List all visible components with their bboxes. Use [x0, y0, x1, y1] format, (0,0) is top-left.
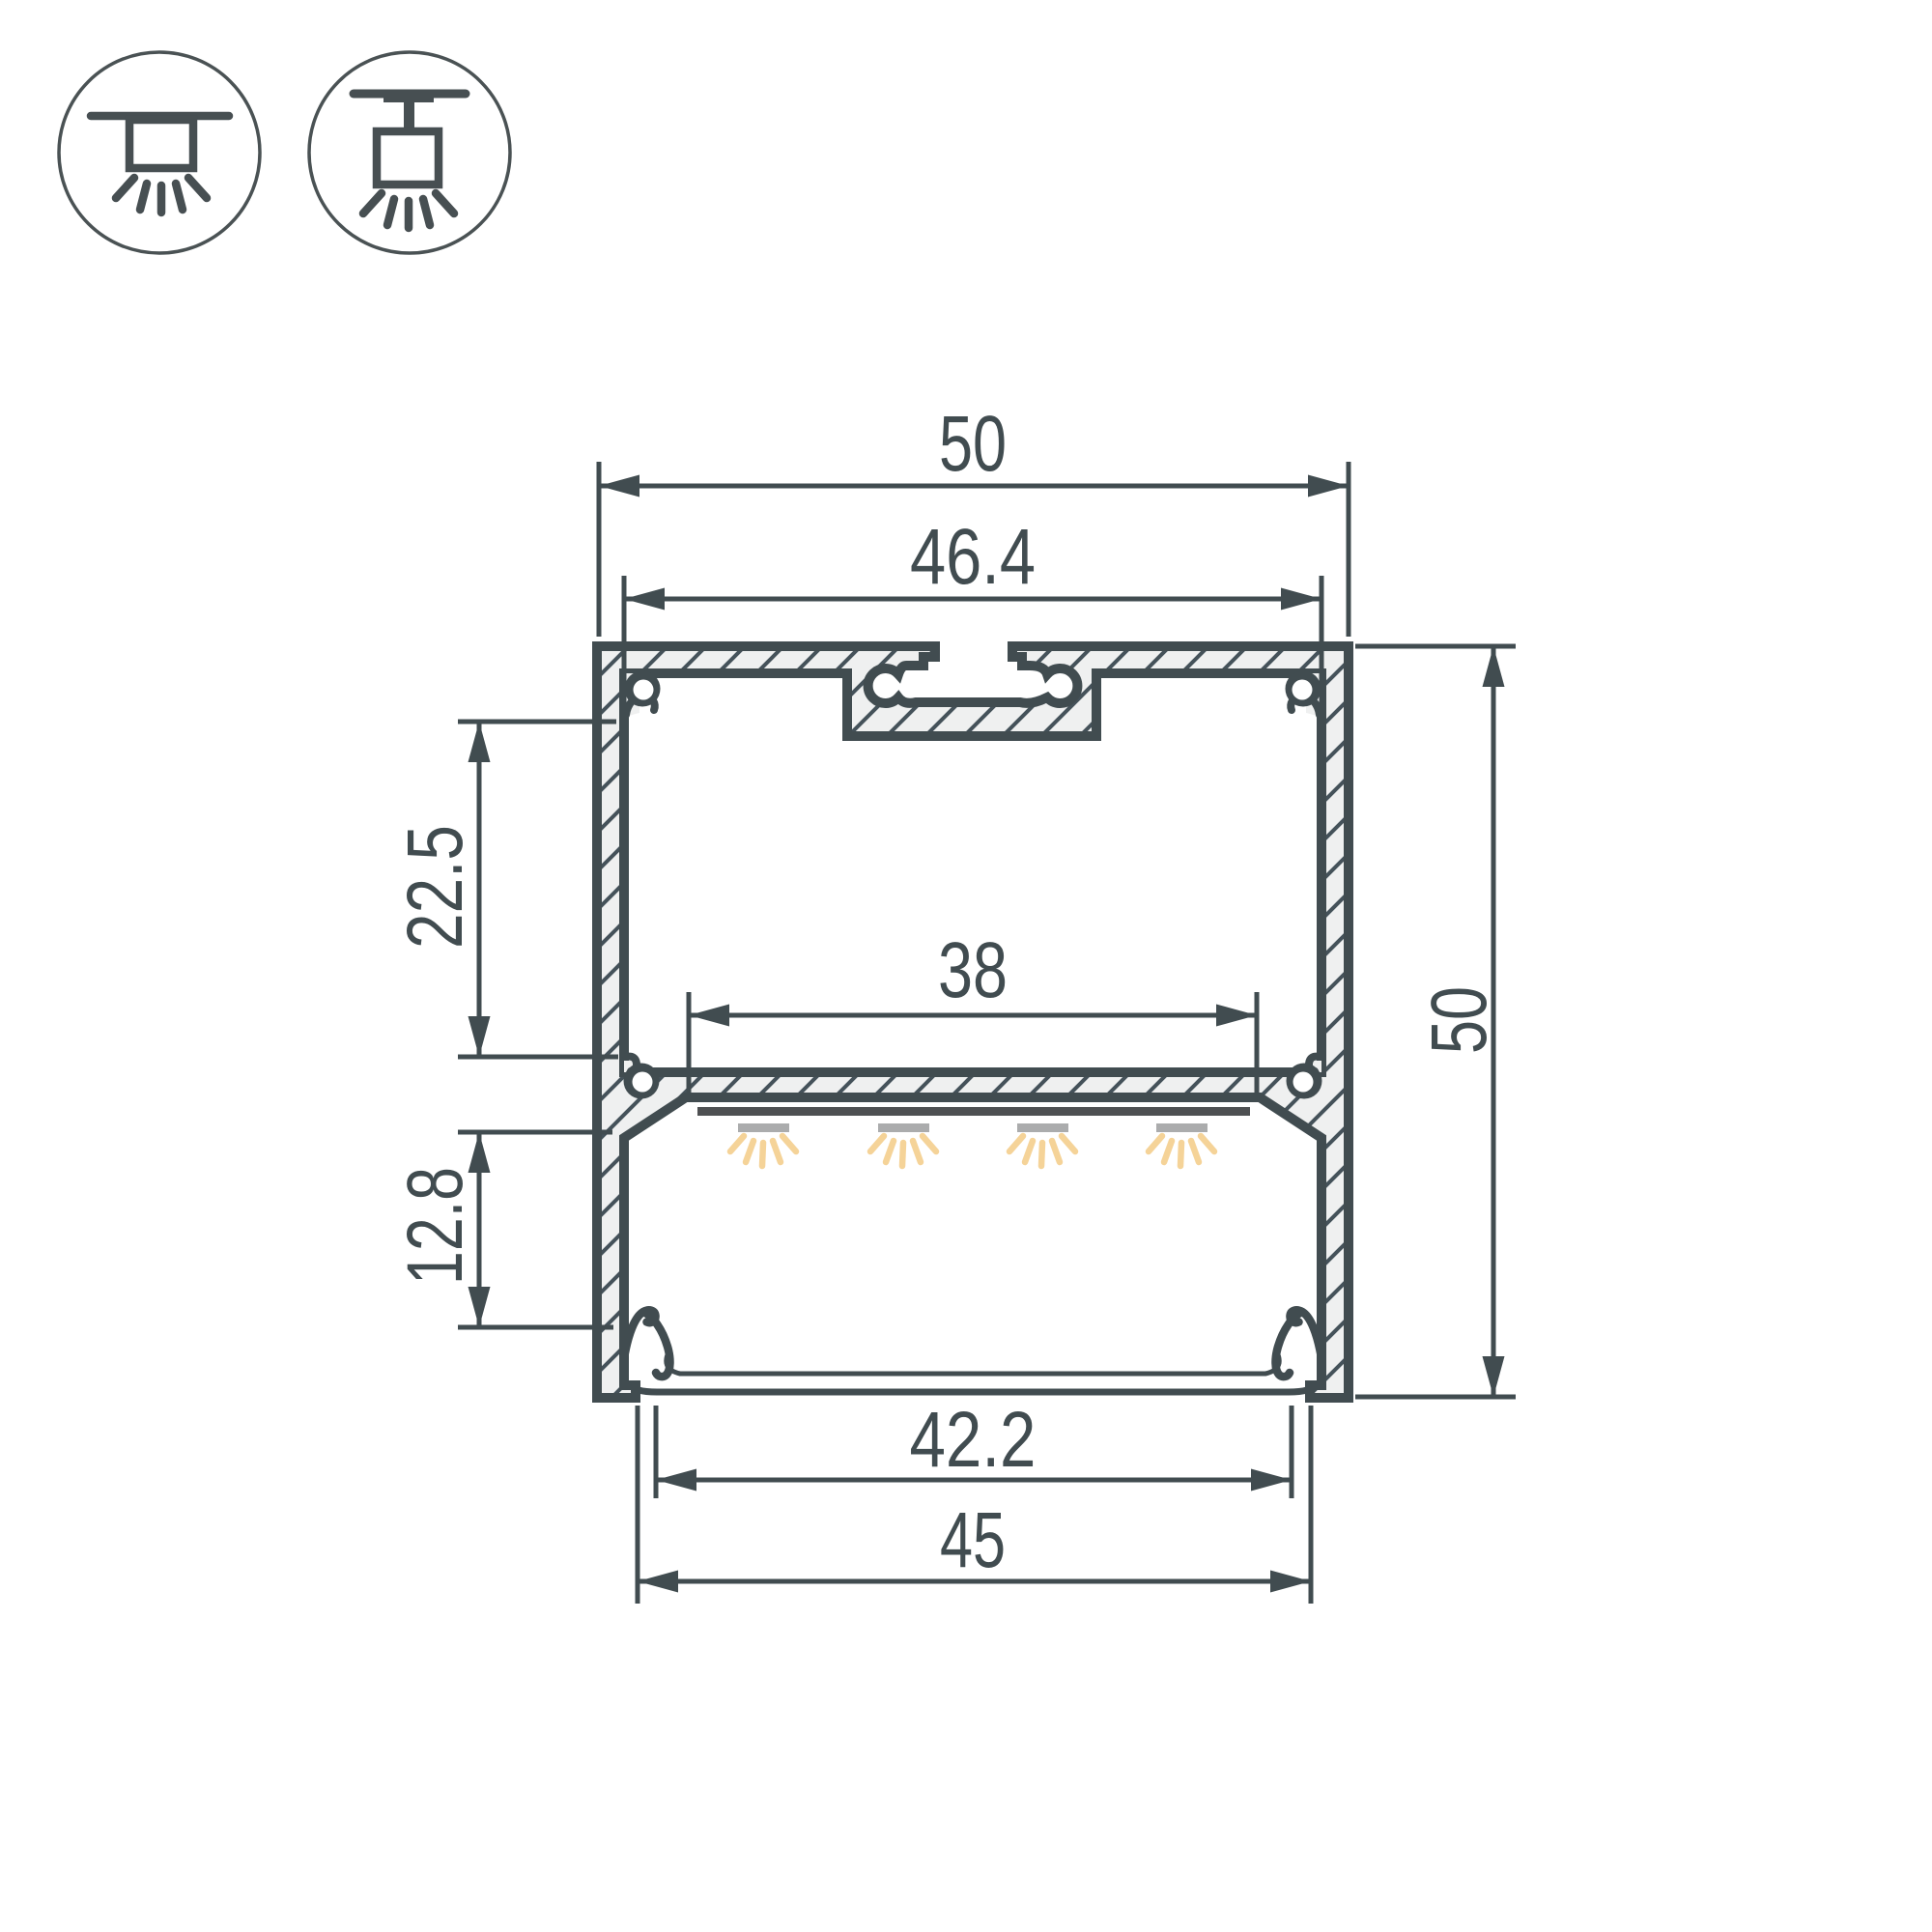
svg-text:46.4: 46.4: [910, 513, 1036, 601]
svg-text:12.8: 12.8: [391, 1167, 479, 1285]
svg-text:50: 50: [1415, 986, 1503, 1054]
svg-text:38: 38: [938, 926, 1008, 1014]
svg-text:45: 45: [940, 1496, 1006, 1584]
svg-text:50: 50: [939, 400, 1007, 488]
svg-text:42.2: 42.2: [910, 1396, 1037, 1484]
svg-text:22.5: 22.5: [391, 825, 479, 949]
